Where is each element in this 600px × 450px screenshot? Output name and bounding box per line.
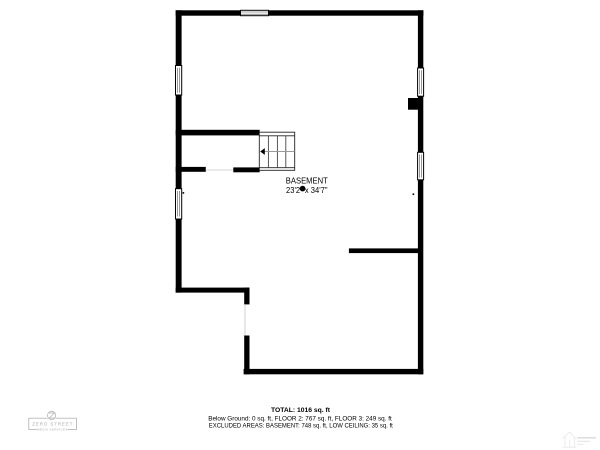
svg-text:EXCLUDED AREAS: BASEMENT: 748: EXCLUDED AREAS: BASEMENT: 748 sq. ft, LO… [209,422,393,429]
svg-text:BASEMENT: BASEMENT [286,176,328,185]
svg-text:TOTAL: 1016 sq. ft: TOTAL: 1016 sq. ft [271,407,331,414]
svg-text:23'2" x 34'7": 23'2" x 34'7" [286,186,328,195]
svg-text:ZERO STREET: ZERO STREET [32,422,73,427]
svg-text:MEDIA SERVICES: MEDIA SERVICES [37,427,68,431]
svg-text:Below Ground: 0 sq. ft, FLOOR: Below Ground: 0 sq. ft, FLOOR 2: 767 sq.… [208,415,392,422]
